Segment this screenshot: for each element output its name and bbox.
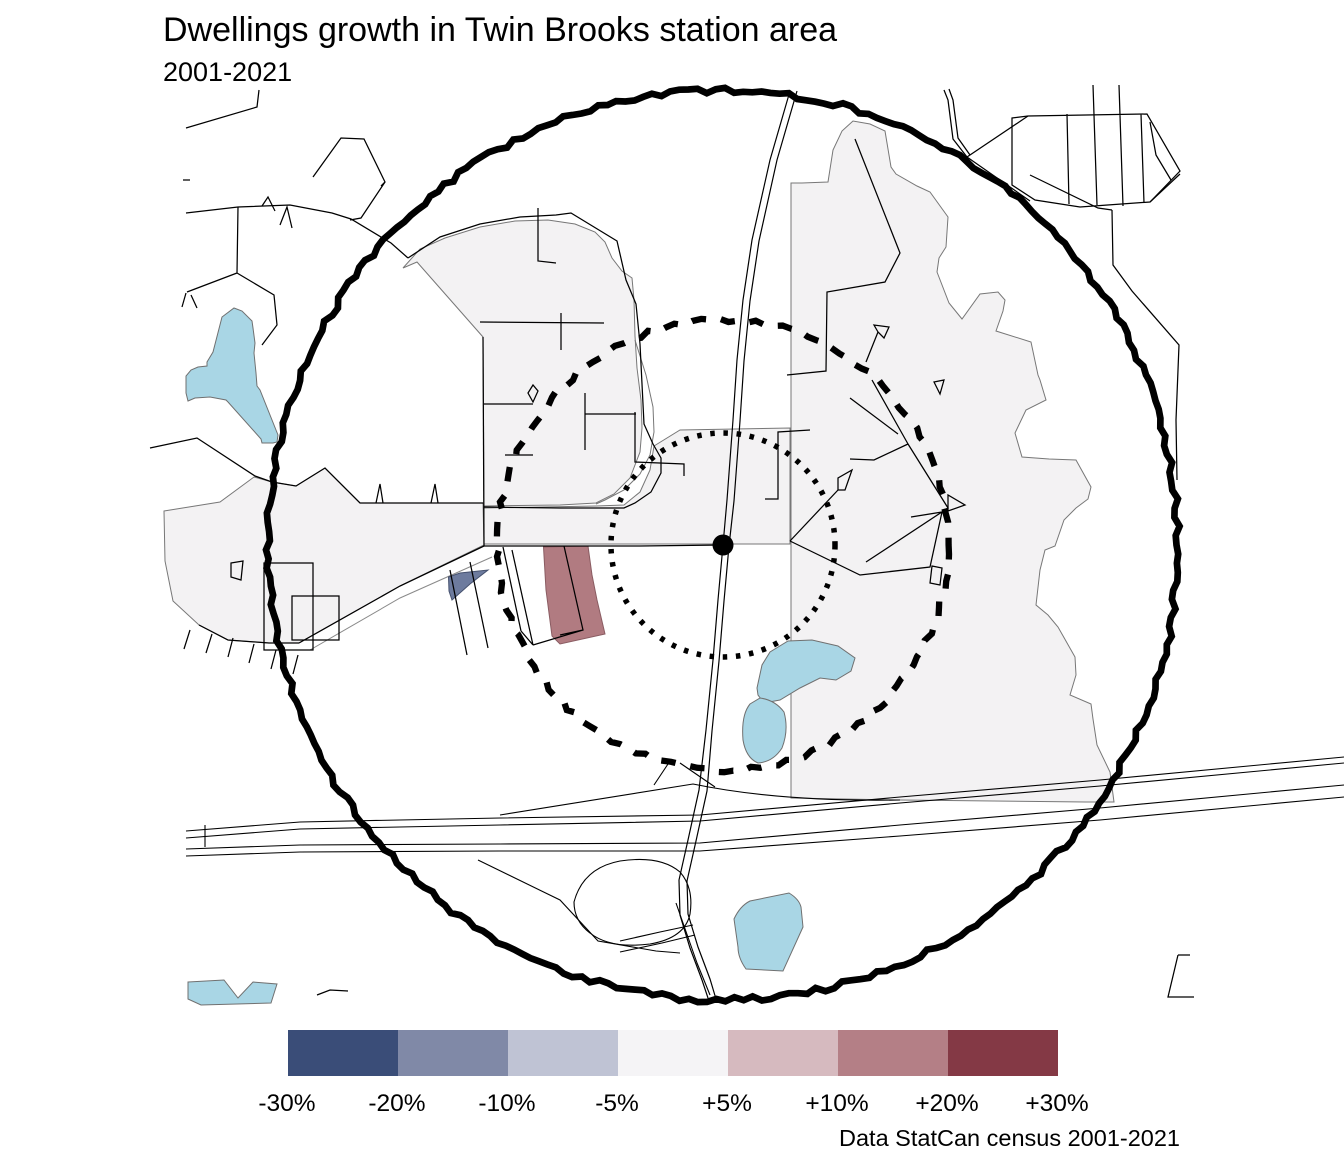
svg-text:+20%: +20% — [915, 1090, 978, 1117]
svg-text:-10%: -10% — [478, 1090, 535, 1117]
svg-text:-30%: -30% — [258, 1090, 315, 1117]
svg-text:+10%: +10% — [805, 1090, 868, 1117]
svg-text:Data StatCan census 2001-2021: Data StatCan census 2001-2021 — [839, 1125, 1180, 1151]
svg-text:-5%: -5% — [595, 1090, 639, 1117]
svg-text:Dwellings growth in Twin Brook: Dwellings growth in Twin Brooks station … — [163, 11, 837, 49]
svg-text:2001-2021: 2001-2021 — [163, 57, 292, 87]
svg-text:-20%: -20% — [368, 1090, 425, 1117]
svg-text:+30%: +30% — [1025, 1090, 1088, 1117]
svg-text:+5%: +5% — [702, 1090, 752, 1117]
